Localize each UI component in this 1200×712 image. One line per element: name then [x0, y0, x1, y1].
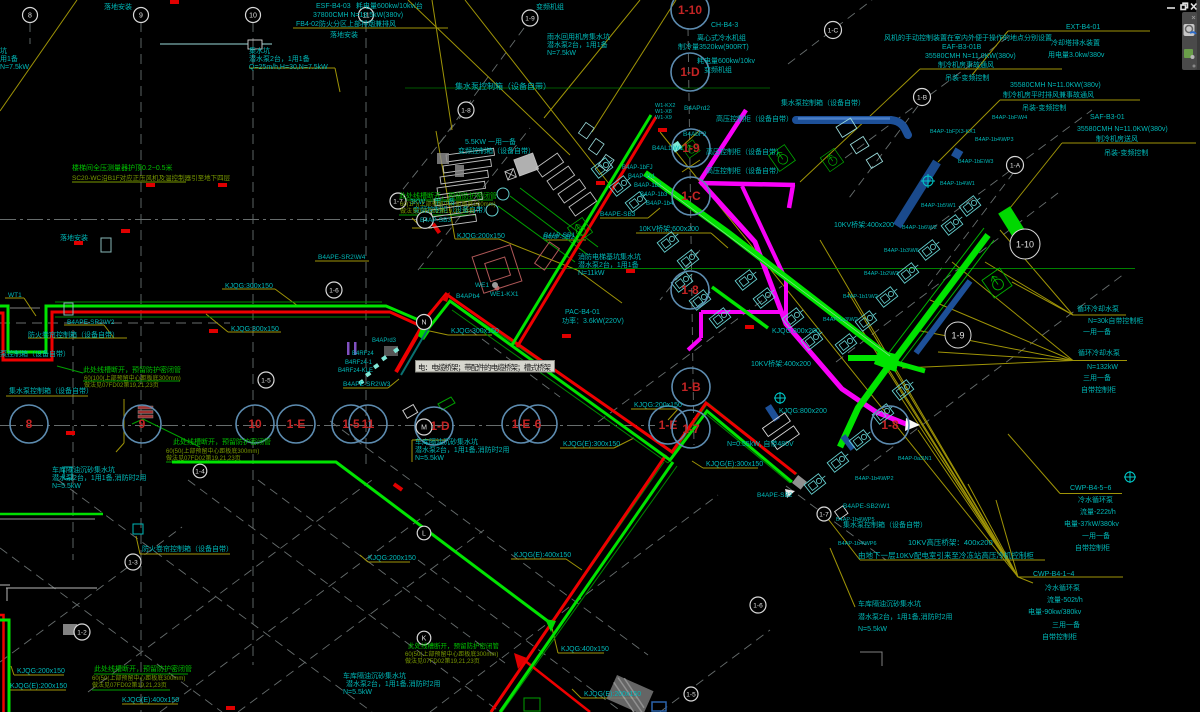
- svg-text:B4AP-1b1\W2: B4AP-1b1\W2: [843, 294, 878, 300]
- svg-text:10KV桥架:600x200: 10KV桥架:600x200: [639, 224, 699, 233]
- svg-text:此处线槽断开，预留防护密闭管: 此处线槽断开，预留防护密闭管: [399, 191, 497, 200]
- svg-text:此处线槽断开，预留防护密闭管: 此处线槽断开，预留防护密闭管: [173, 437, 271, 446]
- svg-text:W1-X9: W1-X9: [655, 115, 672, 121]
- svg-text:1-8: 1-8: [681, 283, 699, 297]
- svg-text:B4RFz4-1: B4RFz4-1: [345, 360, 373, 366]
- svg-text:B4AP-1b4\WP3: B4AP-1b4\WP3: [975, 137, 1014, 143]
- svg-text:潜水泵2台，1用1备: 潜水泵2台，1用1备: [547, 40, 608, 49]
- svg-text:泵控制箱（设备自带）: 泵控制箱（设备自带）: [0, 349, 70, 358]
- svg-text:集水泵控制箱（设备自带）: 集水泵控制箱（设备自带）: [843, 520, 927, 529]
- svg-text:10: 10: [249, 13, 257, 20]
- svg-text:B4AP-1bE\W3: B4AP-1bE\W3: [958, 159, 993, 165]
- svg-text:N=5.5kW: N=5.5kW: [343, 689, 372, 696]
- svg-text:冷水循环泵: 冷水循环泵: [1045, 583, 1080, 592]
- svg-text:B4AP-1bF\W4: B4AP-1bF\W4: [992, 115, 1027, 121]
- svg-text:B4APE-SR2\W3: B4APE-SR2\W3: [343, 381, 391, 388]
- svg-text:制冷量3520kw(900RT): 制冷量3520kw(900RT): [678, 42, 749, 51]
- svg-text:离心式冷水机组: 离心式冷水机组: [697, 33, 746, 42]
- svg-text:60(50(上部预留中心距板底300mm): 60(50(上部预留中心距板底300mm): [92, 674, 185, 682]
- svg-text:变频机组: 变频机组: [704, 65, 732, 74]
- svg-text:1-C: 1-C: [828, 27, 839, 34]
- svg-text:此处线槽断开，预留防护密闭管: 此处线槽断开，预留防护密闭管: [83, 365, 181, 374]
- svg-text:1-10: 1-10: [678, 3, 702, 17]
- svg-text:N: N: [421, 320, 426, 327]
- svg-text:EXT-B4-01: EXT-B4-01: [1066, 24, 1100, 31]
- svg-text:B4RFz4-KLE: B4RFz4-KLE: [338, 368, 373, 374]
- svg-text:N=5.5kW: N=5.5kW: [858, 626, 887, 633]
- svg-text:37800CMH N=18.5kW(380v): 37800CMH N=18.5kW(380v): [313, 12, 403, 19]
- svg-text:B4AP-SB3: B4AP-SB3: [420, 217, 451, 224]
- svg-text:此处线槽断开，预留防护密闭管: 此处线槽断开，预留防护密闭管: [94, 664, 192, 673]
- svg-text:集水泵控制箱（设备自带）: 集水泵控制箱（设备自带）: [9, 386, 93, 395]
- svg-text:B4APE-SB2: B4APE-SB2: [757, 492, 793, 499]
- svg-text:KJQG:300x150: KJQG:300x150: [225, 283, 273, 290]
- svg-text:流量-502t/h: 流量-502t/h: [1047, 595, 1083, 604]
- svg-text:潜水泵2台，1用1备,消防时2用: 潜水泵2台，1用1备,消防时2用: [415, 445, 510, 454]
- svg-text:WE1: WE1: [475, 282, 489, 289]
- svg-text:CWP-B4-1~4: CWP-B4-1~4: [1033, 571, 1075, 578]
- svg-text:K: K: [422, 636, 427, 643]
- svg-text:M: M: [421, 425, 427, 432]
- svg-text:做法见07FD02第19,21,23页: 做法见07FD02第19,21,23页: [84, 381, 159, 389]
- svg-text:1-9: 1-9: [951, 330, 964, 340]
- svg-text:防火卷帘控制箱（设备自带）: 防火卷帘控制箱（设备自带）: [28, 330, 119, 339]
- svg-text:KJQG(E):200x150: KJQG(E):200x150: [584, 691, 641, 698]
- svg-text:1-5: 1-5: [261, 377, 271, 384]
- svg-text:B4AP-1b6\W2: B4AP-1b6\W2: [902, 225, 937, 231]
- svg-text:9: 9: [139, 417, 146, 431]
- svg-text:N=7.5kW: N=7.5kW: [547, 50, 576, 57]
- svg-text:潜水泵2台，1用1备: 潜水泵2台，1用1备: [578, 260, 639, 269]
- svg-text:车库隔油沉砂集水坑: 车库隔油沉砂集水坑: [52, 465, 115, 474]
- svg-text:制冷机房送风: 制冷机房送风: [1096, 134, 1138, 143]
- svg-text:B4AP-1bFJ: B4AP-1bFJ: [622, 165, 653, 171]
- svg-text:B4AP-1b4\WP2: B4AP-1b4\WP2: [855, 476, 894, 482]
- svg-text:由地下一层10KV配电室引来至冷冻站高压冷机控制柜: 由地下一层10KV配电室引来至冷冻站高压冷机控制柜: [858, 550, 1034, 560]
- svg-text:变频控制箱（设备自带）: 变频控制箱（设备自带）: [458, 146, 535, 155]
- svg-text:高压控制柜（设备自带）: 高压控制柜（设备自带）: [706, 147, 783, 156]
- svg-text:10KV高压桥架：400x200: 10KV高压桥架：400x200: [908, 537, 993, 547]
- svg-text:CWP-B4-5~6: CWP-B4-5~6: [1070, 485, 1112, 492]
- svg-text:SC20-WC沿B1F对应正压风机及温控制器引至地下四层: SC20-WC沿B1F对应正压风机及温控制器引至地下四层: [72, 173, 231, 182]
- svg-text:冷水循环泵: 冷水循环泵: [1078, 495, 1113, 504]
- svg-text:潜水泵2台，1用1备,消防时2用: 潜水泵2台，1用1备,消防时2用: [52, 473, 147, 482]
- svg-text:B4AP-0a3\N1: B4AP-0a3\N1: [898, 456, 932, 462]
- svg-text:吊装-变频控制: 吊装-变频控制: [1104, 148, 1148, 157]
- svg-text:车库隔油沉砂集水坑: 车库隔油沉砂集水坑: [343, 671, 406, 680]
- svg-text:高压控制柜（设备自带）: 高压控制柜（设备自带）: [706, 166, 783, 175]
- svg-text:ESF-B4-03: ESF-B4-03: [316, 3, 351, 10]
- svg-text:三用一备: 三用一备: [1052, 620, 1080, 629]
- svg-text:1-6: 1-6: [329, 287, 339, 294]
- svg-text:B4APrd3: B4APrd3: [372, 338, 397, 344]
- svg-text:1-6: 1-6: [753, 602, 763, 609]
- svg-text:防火卷帘控制箱（设备自带）: 防火卷帘控制箱（设备自带）: [142, 544, 233, 553]
- svg-text:1-7: 1-7: [682, 422, 700, 436]
- svg-text:KJQG:200x150: KJQG:200x150: [457, 233, 505, 240]
- svg-text:1-4: 1-4: [195, 468, 205, 475]
- svg-text:KJQG:800x200: KJQG:800x200: [779, 408, 827, 415]
- svg-text:1-9: 1-9: [682, 141, 700, 155]
- svg-text:1-2: 1-2: [77, 629, 87, 636]
- svg-text:KJQG:200x150: KJQG:200x150: [368, 555, 416, 562]
- svg-text:N=5.5kW: N=5.5kW: [52, 483, 81, 490]
- svg-text:1-7: 1-7: [819, 511, 829, 518]
- svg-text:L: L: [422, 531, 426, 538]
- svg-text:6: 6: [535, 417, 542, 431]
- svg-text:自带控制柜: 自带控制柜: [1075, 543, 1110, 552]
- svg-text:1-9: 1-9: [525, 15, 535, 22]
- svg-text:集水坑: 集水坑: [249, 46, 270, 55]
- svg-text:用电量3.0kw/380v: 用电量3.0kw/380v: [1048, 50, 1105, 59]
- svg-text:B4APE-SR2\W2: B4APE-SR2\W2: [67, 319, 115, 326]
- svg-text:坑: 坑: [0, 46, 7, 55]
- svg-text:60(1F)(上部预留中心距板底300mm): 60(1F)(上部预留中心距板底300mm): [400, 200, 496, 208]
- svg-text:做法见07FD02第19,21,23页: 做法见07FD02第19,21,23页: [405, 657, 480, 665]
- svg-text:B4APE-SB2\W1: B4APE-SB2\W1: [843, 503, 890, 510]
- svg-text:KJQG(E):400x150: KJQG(E):400x150: [514, 552, 571, 559]
- svg-text:B4AP-1b4\WP6: B4AP-1b4\WP6: [838, 541, 877, 547]
- svg-text:1-D: 1-D: [430, 419, 450, 433]
- svg-text:35580CMH N=11.0KW(380v): 35580CMH N=11.0KW(380v): [1077, 126, 1168, 133]
- svg-text:风机的手动控制装置在室内外便于操作的地点分别设置: 风机的手动控制装置在室内外便于操作的地点分别设置: [884, 33, 1052, 42]
- svg-text:B4APE-SB3: B4APE-SB3: [600, 211, 636, 218]
- svg-text:FB4-02防火分区上部排烟兼排风: FB4-02防火分区上部排烟兼排风: [296, 19, 396, 28]
- svg-text:高压控制柜（设备自带）: 高压控制柜（设备自带）: [716, 114, 793, 123]
- svg-text:60(100(上部预留中心距板底300mm): 60(100(上部预留中心距板底300mm): [84, 374, 181, 382]
- svg-text:KJQG:400x150: KJQG:400x150: [561, 646, 609, 653]
- svg-text:做法见07FD02第19,21,23页: 做法见07FD02第19,21,23页: [166, 454, 241, 462]
- svg-text:B4AP-1b4\W1: B4AP-1b4\W1: [940, 181, 975, 187]
- svg-text:KJQG(E):400x150: KJQG(E):400x150: [122, 697, 179, 704]
- svg-text:B4APb4: B4APb4: [456, 293, 480, 300]
- svg-text:1-D: 1-D: [680, 65, 700, 79]
- svg-text:KJQG:300x150: KJQG:300x150: [451, 328, 499, 335]
- svg-text:潜水泵2台，1用1备,消防时2用: 潜水泵2台，1用1备,消防时2用: [346, 679, 441, 688]
- svg-text:功率：3.6kW(220V): 功率：3.6kW(220V): [562, 316, 624, 325]
- svg-text:电量-90kw/380kv: 电量-90kw/380kv: [1028, 607, 1082, 616]
- svg-text:8: 8: [28, 13, 32, 20]
- svg-text:一用一备: 一用一备: [1082, 531, 1110, 540]
- svg-text:制冷机房事故通风: 制冷机房事故通风: [938, 60, 994, 69]
- svg-text:1-10: 1-10: [1016, 239, 1034, 249]
- svg-text:做法见07FD02第19,21,23页: 做法见07FD02第19,21,23页: [92, 681, 167, 689]
- svg-text:吊装-变频控制: 吊装-变频控制: [945, 73, 989, 82]
- svg-text:落地安装: 落地安装: [330, 30, 358, 39]
- svg-text:10KV桥架:400x200: 10KV桥架:400x200: [751, 359, 811, 368]
- svg-text:10: 10: [248, 417, 262, 431]
- svg-text:潜水泵2台，1用1备: 潜水泵2台，1用1备: [249, 54, 310, 63]
- svg-text:N=0.55kW, 自带480V: N=0.55kW, 自带480V: [727, 439, 794, 448]
- svg-text:变频机组: 变频机组: [536, 2, 564, 11]
- svg-text:KJQG(E):300x150: KJQG(E):300x150: [563, 441, 620, 448]
- svg-text:35580CMH N=11.0KW(380v): 35580CMH N=11.0KW(380v): [1010, 82, 1101, 89]
- svg-text:N=7.5kW: N=7.5kW: [0, 64, 29, 71]
- svg-text:落地安装: 落地安装: [104, 2, 132, 11]
- svg-text:耗电量600kw/10kv: 耗电量600kw/10kv: [697, 56, 755, 65]
- svg-text:用1备: 用1备: [0, 54, 18, 63]
- svg-text:潜水泵2台，1用1备,消防时2用: 潜水泵2台，1用1备,消防时2用: [858, 612, 953, 621]
- svg-text:B4AP-1b2: B4AP-1b2: [634, 183, 662, 189]
- svg-text:KJQG:300x150: KJQG:300x150: [231, 326, 279, 333]
- svg-text:1-A: 1-A: [1010, 162, 1021, 169]
- svg-text:KJQG:200x150: KJQG:200x150: [634, 402, 682, 409]
- svg-text:CH-B4-3: CH-B4-3: [711, 22, 738, 29]
- svg-text:B4AL1\W1: B4AL1\W1: [652, 145, 683, 152]
- svg-text:流量-222t/h: 流量-222t/h: [1080, 507, 1116, 516]
- svg-text:N=11kW: N=11kW: [578, 270, 605, 277]
- svg-text:B4AP-1b2\W3: B4AP-1b2\W3: [864, 271, 899, 277]
- svg-text:自带控制柜: 自带控制柜: [1042, 632, 1077, 641]
- svg-text:循环冷却水泵: 循环冷却水泵: [1077, 304, 1119, 313]
- svg-text:消防电梯基坑集水坑: 消防电梯基坑集水坑: [578, 252, 641, 261]
- svg-text:9: 9: [139, 13, 143, 20]
- svg-text:1-E: 1-E: [512, 417, 531, 431]
- svg-text:冷却塔排水装置: 冷却塔排水装置: [1051, 38, 1100, 47]
- svg-text:B4AbF2: B4AbF2: [683, 131, 707, 138]
- svg-text:1-B: 1-B: [681, 380, 701, 394]
- svg-text:电量-37kW/380kv: 电量-37kW/380kv: [1064, 519, 1119, 528]
- svg-text:KJQG(E):300x150: KJQG(E):300x150: [706, 461, 763, 468]
- svg-text:电：电缆桥架；带配件的电缆桥架；槽式桥架: 电：电缆桥架；带配件的电缆桥架；槽式桥架: [418, 362, 552, 372]
- svg-text:车库隔油沉砂集水坑: 车库隔油沉砂集水坑: [858, 599, 921, 608]
- svg-text:楼梯间全压测量器护顶0.2~0.5米: 楼梯间全压测量器护顶0.2~0.5米: [72, 163, 173, 172]
- svg-text:B4AP-1b3\W6: B4AP-1b3\W6: [884, 248, 919, 254]
- svg-text:60(50(上部预留中心距板底300mm): 60(50(上部预留中心距板底300mm): [166, 447, 259, 455]
- svg-text:三用一备: 三用一备: [1083, 373, 1111, 382]
- svg-text:一用一备: 一用一备: [1083, 327, 1111, 336]
- svg-text:KJQG:200x150: KJQG:200x150: [17, 668, 65, 675]
- svg-text:KJQG:800x200: KJQG:800x200: [772, 328, 820, 335]
- svg-text:B4AP-1b3: B4AP-1b3: [640, 192, 668, 198]
- svg-text:耗电量600kw/10kv/台: 耗电量600kw/10kv/台: [356, 1, 423, 10]
- svg-text:B4RFz4: B4RFz4: [352, 351, 374, 357]
- svg-text:Q=25m/h,H=30,N=7.5kW: Q=25m/h,H=30,N=7.5kW: [249, 64, 328, 71]
- svg-text:1-5: 1-5: [686, 691, 696, 698]
- svg-text:EAF-B3-01B: EAF-B3-01B: [942, 44, 982, 51]
- svg-text:B4AP-1bF[X3-KX1: B4AP-1bF[X3-KX1: [930, 129, 976, 135]
- svg-text:11: 11: [362, 417, 375, 431]
- svg-text:B4AP-1b4: B4AP-1b4: [646, 201, 674, 207]
- svg-text:B4AP-1b1: B4AP-1b1: [628, 174, 656, 180]
- svg-text:此处线槽断开，预留防护密闭管: 此处线槽断开，预留防护密闭管: [408, 641, 500, 650]
- svg-text:1-8: 1-8: [881, 418, 899, 432]
- svg-text:做法见07FD02第19,21,23页: 做法见07FD02第19,21,23页: [400, 207, 475, 215]
- svg-text:1-C: 1-C: [681, 189, 701, 203]
- svg-text:N=30k自带控制柜: N=30k自带控制柜: [1088, 316, 1143, 325]
- svg-text:10KV桥架:400x200: 10KV桥架:400x200: [834, 220, 894, 229]
- svg-text:8: 8: [26, 417, 33, 431]
- svg-text:WE1-KX1: WE1-KX1: [490, 291, 519, 298]
- svg-text:自带控制柜: 自带控制柜: [1081, 385, 1116, 394]
- svg-text:60(50(上部预留中心距板底300mm): 60(50(上部预留中心距板底300mm): [405, 650, 498, 658]
- svg-text:循环冷却水泵: 循环冷却水泵: [1078, 348, 1120, 357]
- svg-text:SAF-B3-01: SAF-B3-01: [1090, 114, 1125, 121]
- svg-text:B4AP-1a3\W2: B4AP-1a3\W2: [823, 317, 858, 323]
- svg-text:1-B: 1-B: [917, 94, 927, 101]
- svg-text:车库隔油沉砂集水坑: 车库隔油沉砂集水坑: [415, 437, 478, 446]
- svg-text:雨水回用机房集水坑: 雨水回用机房集水坑: [547, 32, 610, 41]
- svg-text:制冷机房平时排风兼事故通风: 制冷机房平时排风兼事故通风: [1003, 90, 1094, 99]
- svg-text:B4AP-1b5\W1: B4AP-1b5\W1: [921, 203, 956, 209]
- svg-text:35580CMH N=11.0KW(380v): 35580CMH N=11.0KW(380v): [925, 53, 1016, 60]
- svg-text:B4AP-SB2: B4AP-SB2: [543, 234, 574, 241]
- svg-text:WT1: WT1: [8, 292, 22, 299]
- svg-text:5.5KW 一用一备: 5.5KW 一用一备: [465, 137, 516, 146]
- svg-text:N=132kW: N=132kW: [1087, 364, 1118, 371]
- svg-text:落地安装: 落地安装: [60, 233, 88, 242]
- svg-text:集水泵控制箱（设备自带）: 集水泵控制箱（设备自带）: [781, 98, 865, 107]
- svg-text:吊装-变频控制: 吊装-变频控制: [1022, 103, 1066, 112]
- svg-text:B4APrd2: B4APrd2: [684, 105, 710, 112]
- svg-text:1-E: 1-E: [287, 417, 306, 431]
- svg-text:1-8: 1-8: [461, 107, 471, 114]
- svg-text:N=5.5kW: N=5.5kW: [415, 455, 444, 462]
- svg-text:1-3: 1-3: [128, 559, 138, 566]
- svg-text:B4APE-SR2\W4: B4APE-SR2\W4: [318, 254, 366, 261]
- svg-text:1-5: 1-5: [342, 417, 360, 431]
- svg-text:集水泵控制箱（设备自带）: 集水泵控制箱（设备自带）: [455, 81, 551, 91]
- svg-text:PAC-B4-01: PAC-B4-01: [565, 309, 600, 316]
- svg-text:KJQG(E):200x150: KJQG(E):200x150: [10, 683, 67, 690]
